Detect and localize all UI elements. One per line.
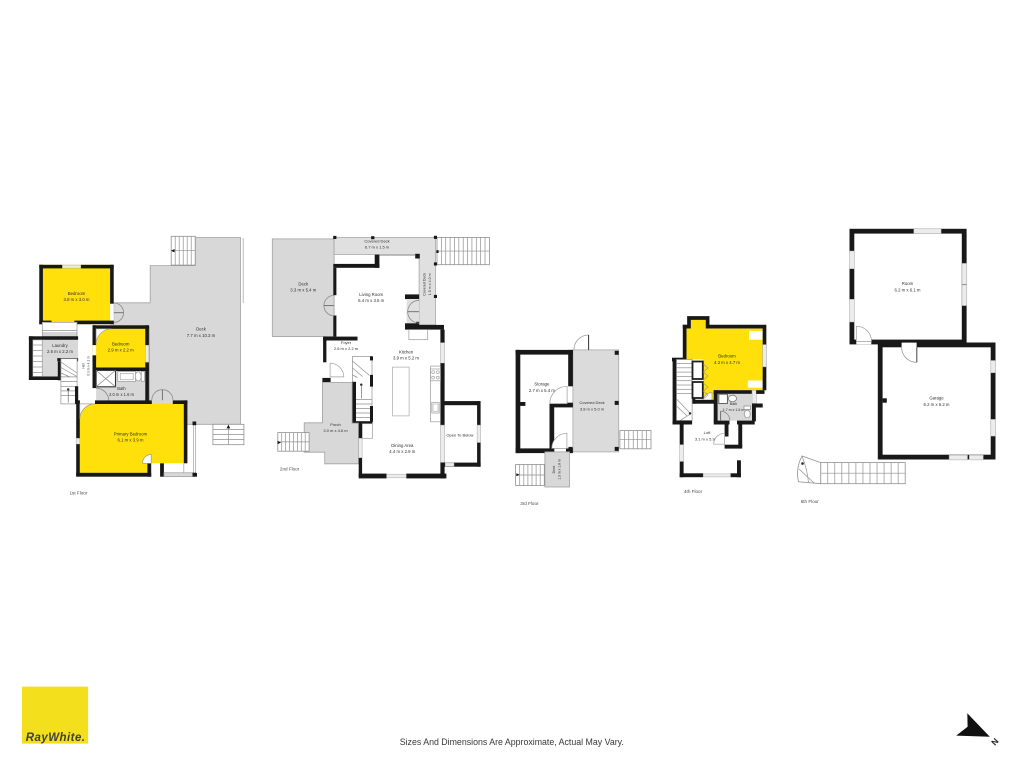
svg-text:3.9 m x 5.2 m: 3.9 m x 5.2 m xyxy=(393,356,419,361)
svg-text:1.3 m x 1.8 m: 1.3 m x 1.8 m xyxy=(558,459,562,480)
svg-text:2nd Floor: 2nd Floor xyxy=(280,467,300,472)
svg-text:4th Floor: 4th Floor xyxy=(684,489,703,494)
svg-text:4.4 m x 2.9 m: 4.4 m x 2.9 m xyxy=(389,449,415,454)
svg-text:1.5 m x 4.0 m: 1.5 m x 4.0 m xyxy=(428,273,432,295)
svg-text:6.2 m x 6.2 m: 6.2 m x 6.2 m xyxy=(923,402,949,407)
svg-text:Deck: Deck xyxy=(298,281,309,286)
svg-text:7.7 m x 10.3 m: 7.7 m x 10.3 m xyxy=(187,333,216,338)
svg-text:Primary Bedroom: Primary Bedroom xyxy=(114,431,148,436)
svg-text:Hall: Hall xyxy=(82,363,86,369)
svg-text:RayWhite.: RayWhite. xyxy=(26,732,86,744)
svg-text:Bedroom: Bedroom xyxy=(112,341,130,346)
svg-text:3rd Floor: 3rd Floor xyxy=(520,501,539,506)
svg-text:Porch: Porch xyxy=(330,422,340,427)
svg-text:1.7 m x 1.6 m: 1.7 m x 1.6 m xyxy=(723,408,745,412)
svg-text:2.0 m x 1.6 m: 2.0 m x 1.6 m xyxy=(109,392,134,397)
svg-text:2.7 m x 5.4 m: 2.7 m x 5.4 m xyxy=(529,388,555,393)
svg-text:3.8 m x 3.0 m: 3.8 m x 3.0 m xyxy=(63,297,89,302)
svg-text:Bedroom: Bedroom xyxy=(718,354,736,359)
svg-text:Open To Below: Open To Below xyxy=(446,432,473,437)
svg-text:6.4 m x 3.5 m: 6.4 m x 3.5 m xyxy=(358,298,384,303)
svg-text:Garage: Garage xyxy=(929,396,944,401)
svg-text:6.7 m x 1.5 m: 6.7 m x 1.5 m xyxy=(365,245,390,250)
svg-text:Room: Room xyxy=(902,281,914,286)
svg-text:2.6 m x 2.2 m: 2.6 m x 2.2 m xyxy=(334,346,359,351)
svg-text:3.8 m x 5.0 m: 3.8 m x 5.0 m xyxy=(580,406,605,411)
svg-text:Deck: Deck xyxy=(552,465,556,473)
svg-text:5th Floor: 5th Floor xyxy=(801,499,820,504)
svg-text:Loft: Loft xyxy=(704,430,712,435)
svg-text:Bedroom: Bedroom xyxy=(68,291,86,296)
svg-text:Dining Area: Dining Area xyxy=(391,443,414,448)
svg-text:1st Floor: 1st Floor xyxy=(70,491,88,496)
svg-text:2.6 m x 2.2 m: 2.6 m x 2.2 m xyxy=(47,349,73,354)
svg-text:Bath: Bath xyxy=(730,402,737,406)
svg-text:0.9 m x 4.1 m: 0.9 m x 4.1 m xyxy=(86,356,90,376)
svg-text:Bath: Bath xyxy=(117,386,126,391)
svg-text:Laundry: Laundry xyxy=(52,343,68,348)
svg-text:Storage: Storage xyxy=(534,382,550,387)
svg-text:Covered Deck: Covered Deck xyxy=(422,273,426,296)
svg-text:Covered Deck: Covered Deck xyxy=(364,238,389,243)
svg-text:Kitchen: Kitchen xyxy=(399,349,414,354)
svg-text:Living Room: Living Room xyxy=(359,292,383,297)
svg-text:6.1 m x 3.9 m: 6.1 m x 3.9 m xyxy=(117,438,143,443)
svg-text:4.3 m x 4.7 m: 4.3 m x 4.7 m xyxy=(714,360,740,365)
svg-text:2.9 m x 2.2 m: 2.9 m x 2.2 m xyxy=(108,348,134,353)
svg-text:Foyer: Foyer xyxy=(341,340,352,345)
svg-text:Deck: Deck xyxy=(196,327,207,332)
svg-text:3.0 m x 4.6 m: 3.0 m x 4.6 m xyxy=(323,428,348,433)
svg-text:Covered Deck: Covered Deck xyxy=(579,400,604,405)
svg-text:6.2 m x 6.1 m: 6.2 m x 6.1 m xyxy=(894,287,920,292)
svg-text:3.3 m x 5.4 m: 3.3 m x 5.4 m xyxy=(290,288,316,293)
svg-text:Sizes And Dimensions Are Appro: Sizes And Dimensions Are Approximate, Ac… xyxy=(400,737,624,747)
